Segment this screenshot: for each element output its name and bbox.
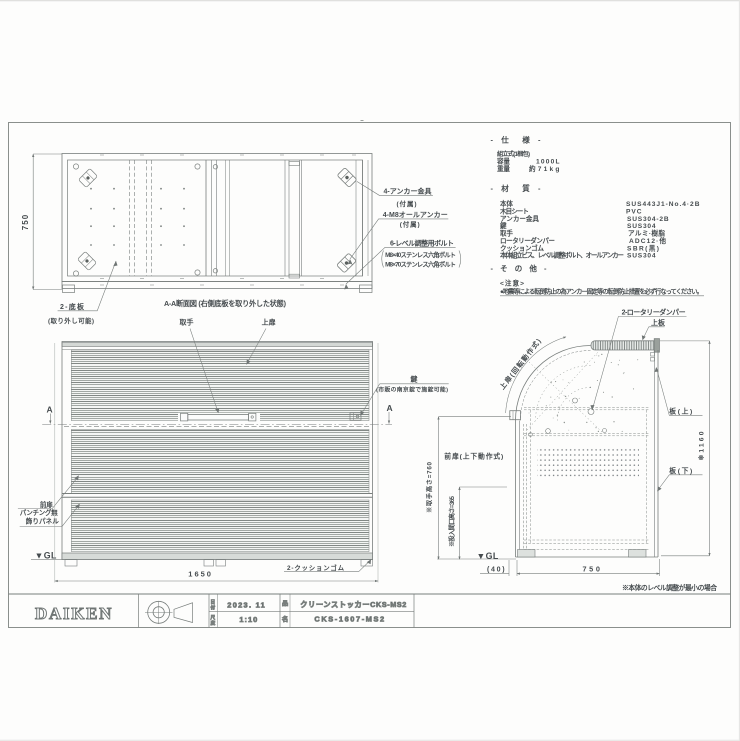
svg-text:M8×40ステンレス六角ボルト: M8×40ステンレス六角ボルト [385, 250, 456, 259]
svg-text:▼GL: ▼GL [477, 551, 499, 561]
svg-text:M8×70ステンレス六角ボルト: M8×70ステンレス六角ボルト [385, 260, 456, 269]
svg-text:1000L: 1000L [536, 159, 561, 166]
svg-text:- 材 質 -: - 材 質 - [491, 183, 542, 193]
svg-text:本体組立ビス、レベル調整ボルト、オールアンカー: 本体組立ビス、レベル調整ボルト、オールアンカー [499, 251, 624, 260]
svg-text:ADC12·他: ADC12·他 [629, 236, 666, 245]
svg-text:A: A [47, 405, 53, 415]
svg-text:1650: 1650 [188, 570, 213, 579]
svg-text:4-アンカー金具: 4-アンカー金具 [384, 187, 432, 196]
svg-text:※1160: ※1160 [698, 431, 706, 461]
svg-text:CKS-1607-MS2: CKS-1607-MS2 [314, 615, 385, 624]
svg-text:2-底板: 2-底板 [60, 302, 85, 311]
svg-text:クッションゴム: クッションゴム [500, 243, 544, 252]
svg-text:約71kg: 約71kg [529, 164, 560, 173]
svg-text:度: 度 [211, 620, 216, 627]
svg-text:A: A [387, 403, 393, 413]
svg-text:ロータリーダンパー: ロータリーダンパー [500, 236, 555, 245]
svg-text:- 仕 様 -: - 仕 様 - [491, 135, 542, 145]
svg-text:品: 品 [282, 600, 288, 608]
svg-text:●地震等による転倒防止の為アンカー固定等の転倒防止措置を必ず: ●地震等による転倒防止の為アンカー固定等の転倒防止措置を必ず行なってください。 [500, 287, 703, 296]
svg-text:前扉(上下動作式): 前扉(上下動作式) [444, 452, 503, 461]
svg-text:鍵: 鍵 [500, 221, 507, 230]
svg-text:飾りパネル: 飾りパネル [26, 517, 59, 526]
svg-text:本体: 本体 [499, 199, 513, 208]
svg-text:アンカー金具: アンカー金具 [500, 214, 539, 223]
svg-text:(付属): (付属) [397, 199, 417, 208]
svg-text:▼GL: ▼GL [35, 550, 57, 560]
svg-text:2-ロータリーダンパー: 2-ロータリーダンパー [622, 308, 686, 317]
svg-text:2023. 11: 2023. 11 [227, 600, 266, 609]
svg-text:組立式(1梱包): 組立式(1梱包) [497, 150, 530, 158]
svg-text:パンチング無: パンチング無 [20, 508, 58, 517]
svg-text:※本体のレベル調整が最小の場合: ※本体のレベル調整が最小の場合 [622, 583, 717, 592]
svg-text:付: 付 [211, 604, 216, 611]
svg-text:木目シート: 木目シート [499, 206, 529, 215]
svg-text:(取り外し可能): (取り外し可能) [48, 316, 94, 325]
svg-text:2-クッションゴム: 2-クッションゴム [287, 563, 345, 572]
svg-text:1:10: 1:10 [239, 615, 258, 624]
svg-text:上板: 上板 [651, 318, 666, 327]
svg-text:前扉: 前扉 [40, 500, 53, 509]
svg-text:<注意>: <注意> [500, 279, 524, 288]
svg-text:(付属): (付属) [400, 220, 420, 229]
svg-text:重量: 重量 [497, 164, 510, 173]
svg-text:容量: 容量 [496, 157, 510, 166]
svg-text:(市販の南京錠で施錠可能): (市販の南京錠で施錠可能) [376, 385, 448, 393]
svg-text:A-A断面図 (右側底板を取り外した状態): A-A断面図 (右側底板を取り外した状態) [164, 299, 287, 308]
svg-text:取手: 取手 [500, 229, 513, 238]
svg-text:SUS304: SUS304 [627, 253, 656, 260]
svg-text:750: 750 [21, 214, 30, 230]
svg-text:SUS304-2B: SUS304-2B [627, 216, 669, 223]
svg-text:750: 750 [583, 565, 603, 574]
svg-text:DAIKEN: DAIKEN [35, 604, 112, 623]
svg-text:SUS443J1-No.4·2B: SUS443J1-No.4·2B [626, 201, 700, 208]
svg-text:4-M8オールアンカー: 4-M8オールアンカー [383, 211, 448, 219]
svg-text:6-レベル調整用ボルト: 6-レベル調整用ボルト [390, 239, 454, 248]
svg-text:アルミ·樹脂: アルミ·樹脂 [628, 229, 665, 238]
svg-text:PVC: PVC [626, 208, 643, 215]
svg-text:(40): (40) [487, 567, 506, 574]
svg-text:上扉: 上扉 [262, 318, 276, 327]
svg-text:名: 名 [282, 616, 288, 624]
svg-text:SUS304: SUS304 [627, 223, 656, 230]
svg-text:クリーンストッカーCKS-MS2: クリーンストッカーCKS-MS2 [300, 600, 406, 609]
svg-text:※取手高さ=760: ※取手高さ=760 [426, 461, 434, 513]
svg-text:取手: 取手 [180, 318, 194, 327]
svg-text:鍵: 鍵 [411, 375, 418, 384]
svg-text:※投入間口高さ=365: ※投入間口高さ=365 [448, 495, 456, 547]
